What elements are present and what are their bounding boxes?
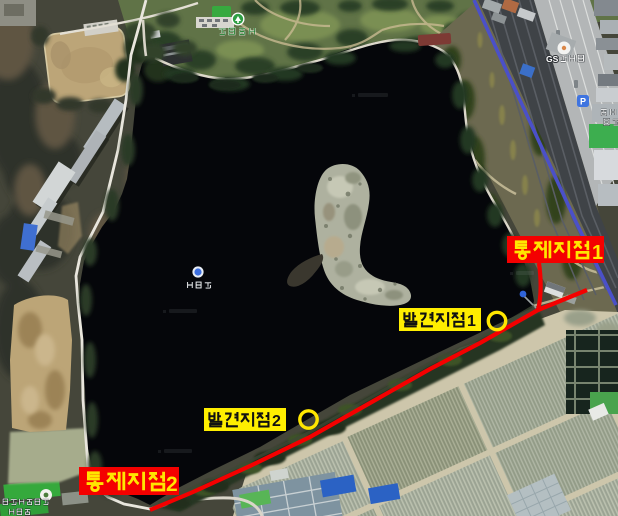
svg-text:1: 1 [467,313,476,330]
svg-text:2: 2 [166,473,178,496]
svg-text:GS: GS [546,54,559,64]
svg-text:2: 2 [272,413,281,430]
svg-text:1: 1 [592,242,603,264]
svg-text:P: P [580,97,586,107]
